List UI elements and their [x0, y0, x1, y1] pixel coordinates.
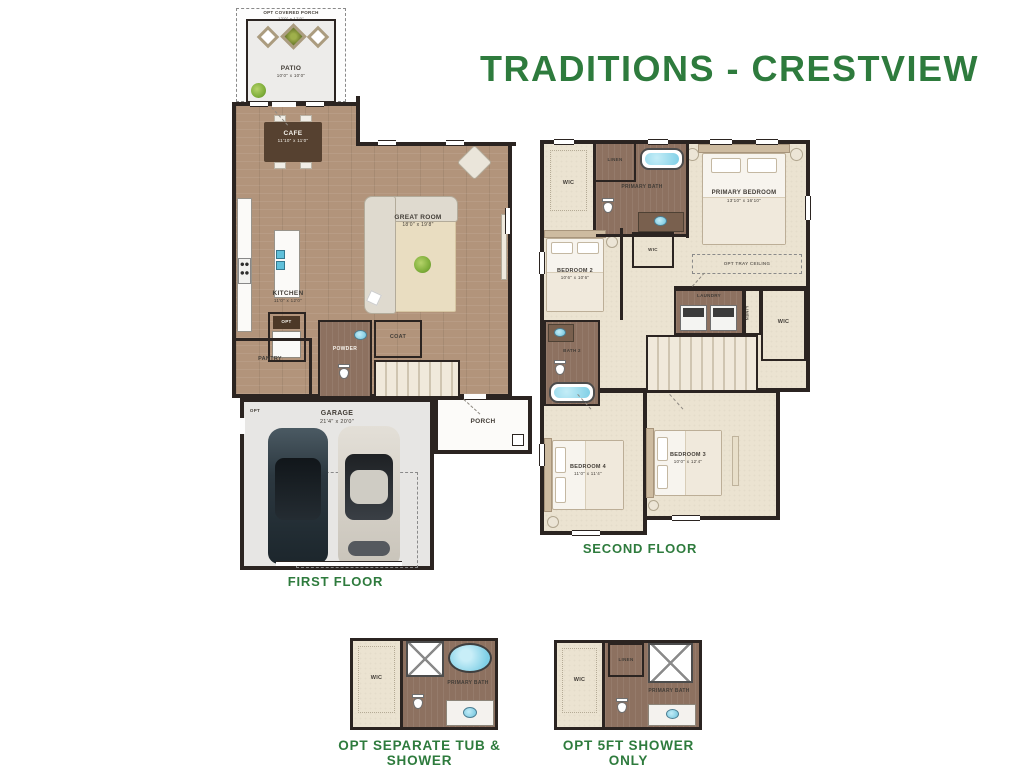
opt-tray-ceiling-label: OPT TRAY CEILING — [693, 261, 801, 267]
window-icon — [446, 140, 464, 146]
headboard — [646, 428, 654, 498]
linen-label: LINEN — [745, 306, 750, 321]
porch-label: PORCH — [438, 418, 528, 426]
toilet-icon — [616, 698, 628, 713]
linen-closet: LINEN — [596, 144, 636, 182]
toilet-icon — [602, 198, 614, 213]
right-wic-room: WIC — [761, 289, 806, 361]
sink-icon — [554, 328, 566, 337]
toilet-icon — [412, 694, 424, 709]
car-cabin — [275, 458, 321, 520]
window-icon — [539, 444, 545, 466]
primary-wic-room: WIC — [544, 144, 596, 234]
plant-icon — [414, 256, 431, 273]
first-floor-plan: OPT COVERED PORCH 12'0" x 12'0" PATIO 10… — [218, 8, 536, 600]
sink-icon — [666, 709, 679, 719]
shrub-icon — [251, 83, 266, 98]
primary-bath-label: PRIMARY BATH — [616, 184, 668, 190]
primary-bath-label: PRIMARY BATH — [442, 680, 494, 686]
wall — [686, 144, 689, 238]
cafe-label: CAFE 11'10" x 11'0" — [264, 130, 322, 144]
doormat-icon — [512, 434, 524, 446]
bedroom3-label: BEDROOM 3 10'0" x 12'4" — [658, 452, 718, 465]
bathtub-icon — [549, 382, 595, 403]
sink-icon — [654, 216, 667, 226]
pantry-label: PANTRY — [238, 356, 302, 363]
plant-planter-icon — [280, 23, 307, 50]
nightstand-icon — [606, 236, 618, 248]
wic-label: WIC — [544, 180, 593, 187]
nightstand-icon — [790, 148, 803, 161]
kitchen-label: KITCHEN 11'0" x 12'0" — [248, 290, 328, 304]
second-floor-caption: SECOND FLOOR — [545, 541, 735, 556]
opt-shower-only-caption: OPT 5FT SHOWER ONLY — [546, 738, 711, 768]
hall-linen-closet: LINEN — [744, 289, 761, 335]
opt-tub-shower-caption: OPT SEPARATE TUB & SHOWER — [312, 738, 527, 768]
headboard — [544, 438, 552, 512]
sink-icon — [354, 330, 367, 340]
nightstand-icon — [648, 500, 659, 511]
window-icon — [672, 515, 700, 521]
first-floor-caption: FIRST FLOOR — [238, 574, 433, 589]
opt-closet-label: OPT — [273, 319, 300, 325]
linen-closet: LINEN — [608, 643, 644, 677]
washer-icon — [680, 305, 707, 331]
sink-icon — [463, 707, 477, 718]
wall — [674, 286, 810, 289]
great-room-label: GREAT ROOM 18'0" x 19'8" — [394, 214, 442, 228]
wic-label: WIC — [557, 677, 602, 684]
island-sink-icon — [276, 250, 285, 259]
primary-bath-label: PRIMARY BATH — [642, 688, 696, 694]
stairs — [646, 335, 758, 392]
wic-label: WIC — [634, 247, 672, 253]
wall — [309, 338, 312, 398]
chair-icon — [300, 115, 312, 122]
planter-icon — [307, 26, 330, 49]
opt-tub-shower-plan: WIC PRIMARY BATH — [348, 636, 503, 736]
bedroom4-label: BEDROOM 4 11'0" x 11'4" — [556, 464, 620, 477]
chair-icon — [274, 162, 286, 169]
island-sink-icon — [276, 261, 285, 270]
window-icon — [378, 140, 396, 146]
primary-bedroom-label: PRIMARY BEDROOM 13'10" x 16'10" — [708, 190, 780, 203]
chair-icon — [300, 162, 312, 169]
dryer-icon — [710, 305, 737, 331]
linen-label: LINEN — [596, 157, 634, 163]
headboard — [698, 144, 790, 153]
cooktop-icon — [238, 258, 251, 284]
exterior-notch — [356, 96, 516, 146]
car-roof — [350, 470, 388, 504]
bath2-room: BATH 2 — [544, 320, 600, 406]
laundry-room: LAUNDRY — [674, 289, 744, 335]
toilet-icon — [338, 364, 350, 379]
car-dark — [268, 428, 328, 564]
garage-label: GARAGE 21'4" x 20'0" — [244, 410, 430, 426]
opt-closet-room: OPT — [268, 312, 306, 362]
wall — [236, 338, 312, 341]
wall — [596, 234, 688, 237]
laundry-label: LAUNDRY — [676, 293, 742, 299]
porch-room: PORCH — [434, 396, 532, 454]
patio-label: PATIO 10'0" x 10'0" — [248, 65, 334, 79]
garage-door — [276, 561, 402, 566]
wic-room: WIC — [353, 641, 403, 727]
patio-door-opening — [272, 102, 296, 107]
patio-room: PATIO 10'0" x 10'0" — [246, 19, 336, 103]
window-icon — [805, 196, 811, 220]
bathtub-icon — [640, 148, 684, 170]
shower-icon — [648, 643, 693, 683]
planter-icon — [257, 26, 280, 49]
coat-label: COAT — [376, 334, 420, 341]
wic-label: WIC — [353, 675, 400, 682]
bath2-label: BATH 2 — [546, 348, 598, 354]
powder-room: POWDER — [318, 320, 372, 398]
bedroom2-label: BEDROOM 2 10'6" x 10'6" — [542, 268, 608, 281]
window-icon — [306, 101, 324, 107]
shower-icon — [406, 641, 444, 677]
hall-wic-room: WIC — [632, 232, 674, 268]
toilet-icon — [554, 360, 566, 375]
linen-label: LINEN — [610, 657, 642, 663]
dresser — [732, 436, 739, 486]
window-icon — [250, 101, 268, 107]
opt-shower-only-plan: WIC LINEN PRIMARY BATH — [554, 638, 706, 734]
stairs — [374, 360, 460, 398]
appliance-icon — [272, 331, 301, 358]
page-title: TRADITIONS - CRESTVIEW — [480, 48, 990, 90]
wic-room: WIC — [557, 643, 605, 727]
soaker-tub-icon — [448, 643, 492, 673]
nightstand-icon — [547, 516, 559, 528]
window-icon — [505, 208, 511, 234]
wic-label: WIC — [763, 319, 804, 326]
window-icon — [756, 139, 778, 145]
window-icon — [572, 530, 600, 536]
window-icon — [710, 139, 732, 145]
car-rear-window — [348, 541, 390, 556]
window-icon — [648, 139, 668, 145]
opt-entry-label: OPT — [246, 408, 264, 414]
window-icon — [554, 139, 574, 145]
garage-room: GARAGE 21'4" x 20'0" OPT — [240, 398, 434, 570]
wall — [620, 228, 623, 320]
coat-closet: COAT — [374, 320, 422, 358]
powder-label: POWDER — [320, 346, 370, 352]
car-light — [338, 426, 400, 566]
opt-tray-ceiling-outline: OPT TRAY CEILING — [692, 254, 802, 274]
second-floor-plan: WIC LINEN PRIMARY BATH PRIMARY BEDROOM 1… — [540, 140, 816, 572]
front-door-opening — [464, 394, 486, 399]
